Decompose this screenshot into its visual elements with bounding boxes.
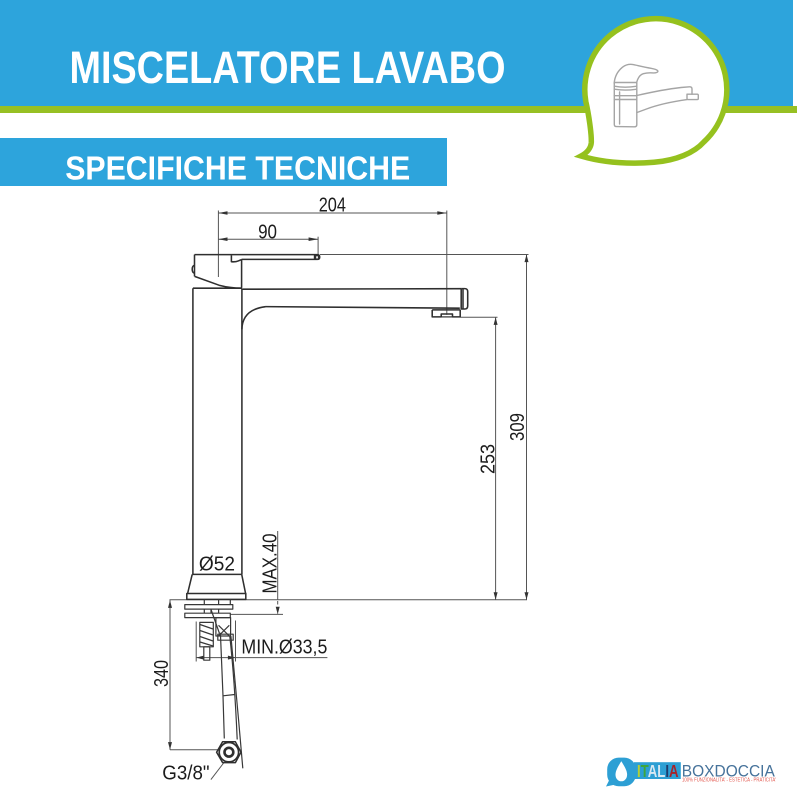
svg-text:SPECIFICHE TECNICHE: SPECIFICHE TECNICHE: [65, 149, 410, 186]
svg-text:ITALIA: ITALIA: [637, 761, 679, 781]
svg-text:G3/8": G3/8": [162, 763, 209, 785]
svg-text:100% FUNZIONALITA' - ESTETICA: 100% FUNZIONALITA' - ESTETICA - PRATICIT…: [682, 777, 776, 783]
svg-text:253: 253: [478, 444, 500, 474]
svg-text:204: 204: [319, 194, 346, 216]
svg-text:MIN.Ø33,5: MIN.Ø33,5: [241, 637, 327, 659]
svg-text:Ø52: Ø52: [199, 554, 235, 576]
svg-text:MAX.40: MAX.40: [260, 534, 282, 594]
svg-text:MISCELATORE LAVABO: MISCELATORE LAVABO: [70, 42, 506, 93]
svg-text:90: 90: [258, 222, 277, 244]
svg-text:309: 309: [507, 413, 529, 441]
svg-text:340: 340: [151, 660, 173, 687]
